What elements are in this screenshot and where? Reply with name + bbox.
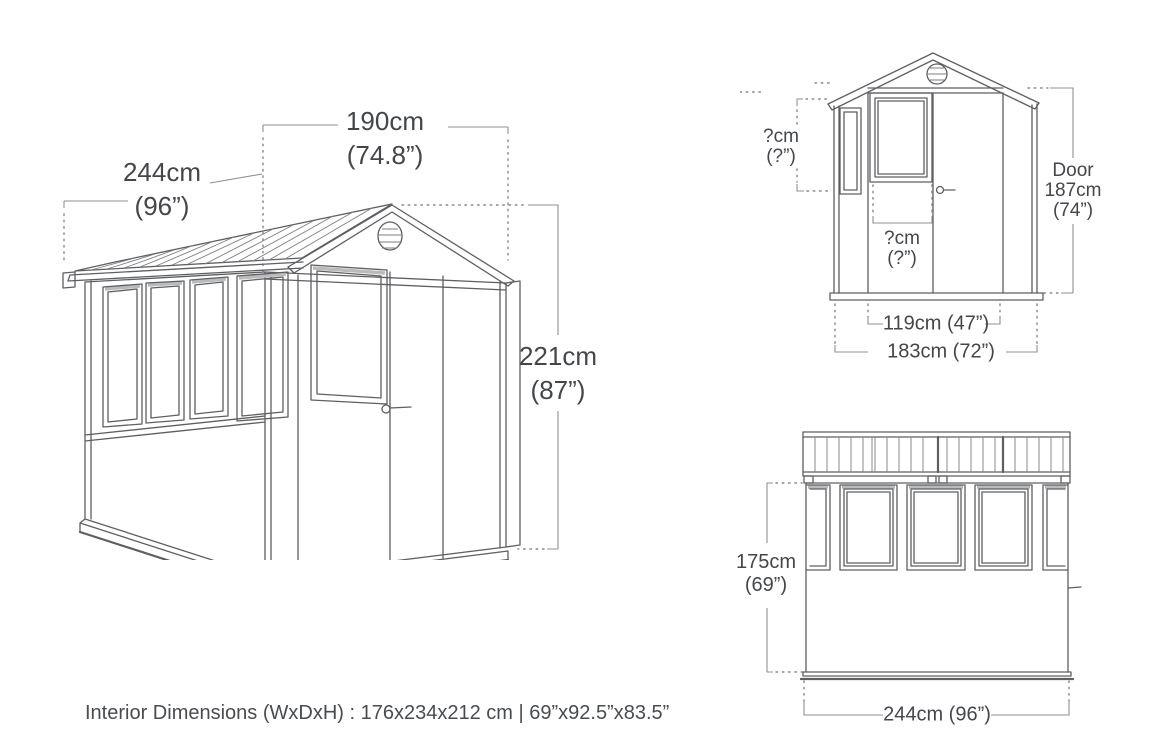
iso-depth-cm: 244cm	[123, 155, 201, 189]
front-door-window-width-cm: ?cm	[884, 229, 920, 249]
front-door-height-title: Door	[1044, 161, 1101, 181]
iso-side-wall	[85, 272, 288, 560]
front-door-window-width-label: ?cm (?”)	[884, 229, 920, 269]
iso-width-cm: 190cm	[346, 104, 424, 138]
front-door-height-cm: 187cm	[1044, 181, 1101, 201]
iso-base	[80, 519, 508, 560]
side-wall	[806, 483, 1081, 672]
iso-front-wall	[265, 265, 520, 560]
interior-dimensions-caption: Interior Dimensions (WxDxH) : 176x234x21…	[85, 702, 669, 725]
front-door-window	[870, 93, 932, 182]
side-roof-band	[803, 432, 1070, 483]
shed-dimension-diagram: 190cm (74.8”) 244cm (96”) 221cm (87”) ?c…	[0, 0, 1170, 736]
front-side-window-height-label: ?cm (?”)	[763, 127, 799, 167]
iso-height-dimension-label: 221cm (87”)	[519, 339, 597, 407]
side-overall-width-text: 244cm (96”)	[883, 704, 991, 727]
side-overall-width-label: 244cm (96”)	[883, 704, 991, 727]
front-door-window-width-inches: (?”)	[884, 249, 920, 269]
side-base	[801, 672, 1073, 679]
front-side-window-height-cm: ?cm	[763, 127, 799, 147]
side-dimension-lines	[767, 483, 1069, 715]
front-overall-width-text: 183cm (72”)	[887, 341, 995, 364]
iso-width-dimension-label: 190cm (74.8”)	[346, 104, 424, 172]
front-walls	[834, 93, 1037, 293]
front-side-window	[840, 108, 861, 194]
iso-height-cm: 221cm	[519, 339, 597, 373]
front-base	[830, 293, 1043, 300]
front-side-window-height-inches: (?”)	[763, 147, 799, 167]
iso-width-inches: (74.8”)	[346, 138, 424, 172]
front-door-width-text: 119cm (47”)	[883, 313, 989, 336]
front-door-handle	[937, 187, 944, 194]
iso-height-inches: (87”)	[519, 373, 597, 407]
front-door-height-inches: (74”)	[1044, 201, 1101, 221]
iso-door-window	[311, 265, 387, 404]
side-wall-height-inches: (69”)	[736, 574, 796, 597]
iso-door-handle	[382, 405, 390, 413]
side-wall-height-cm: 175cm	[736, 551, 796, 574]
front-overall-width-label: 183cm (72”)	[887, 341, 995, 364]
front-door-height-label: Door 187cm (74”)	[1044, 161, 1101, 221]
iso-depth-dimension-label: 244cm (96”)	[123, 155, 201, 223]
gable-vent-icon	[378, 222, 402, 250]
iso-depth-inches: (96”)	[123, 189, 201, 223]
front-door-width-label: 119cm (47”)	[883, 313, 989, 336]
side-wall-height-label: 175cm (69”)	[736, 551, 796, 597]
